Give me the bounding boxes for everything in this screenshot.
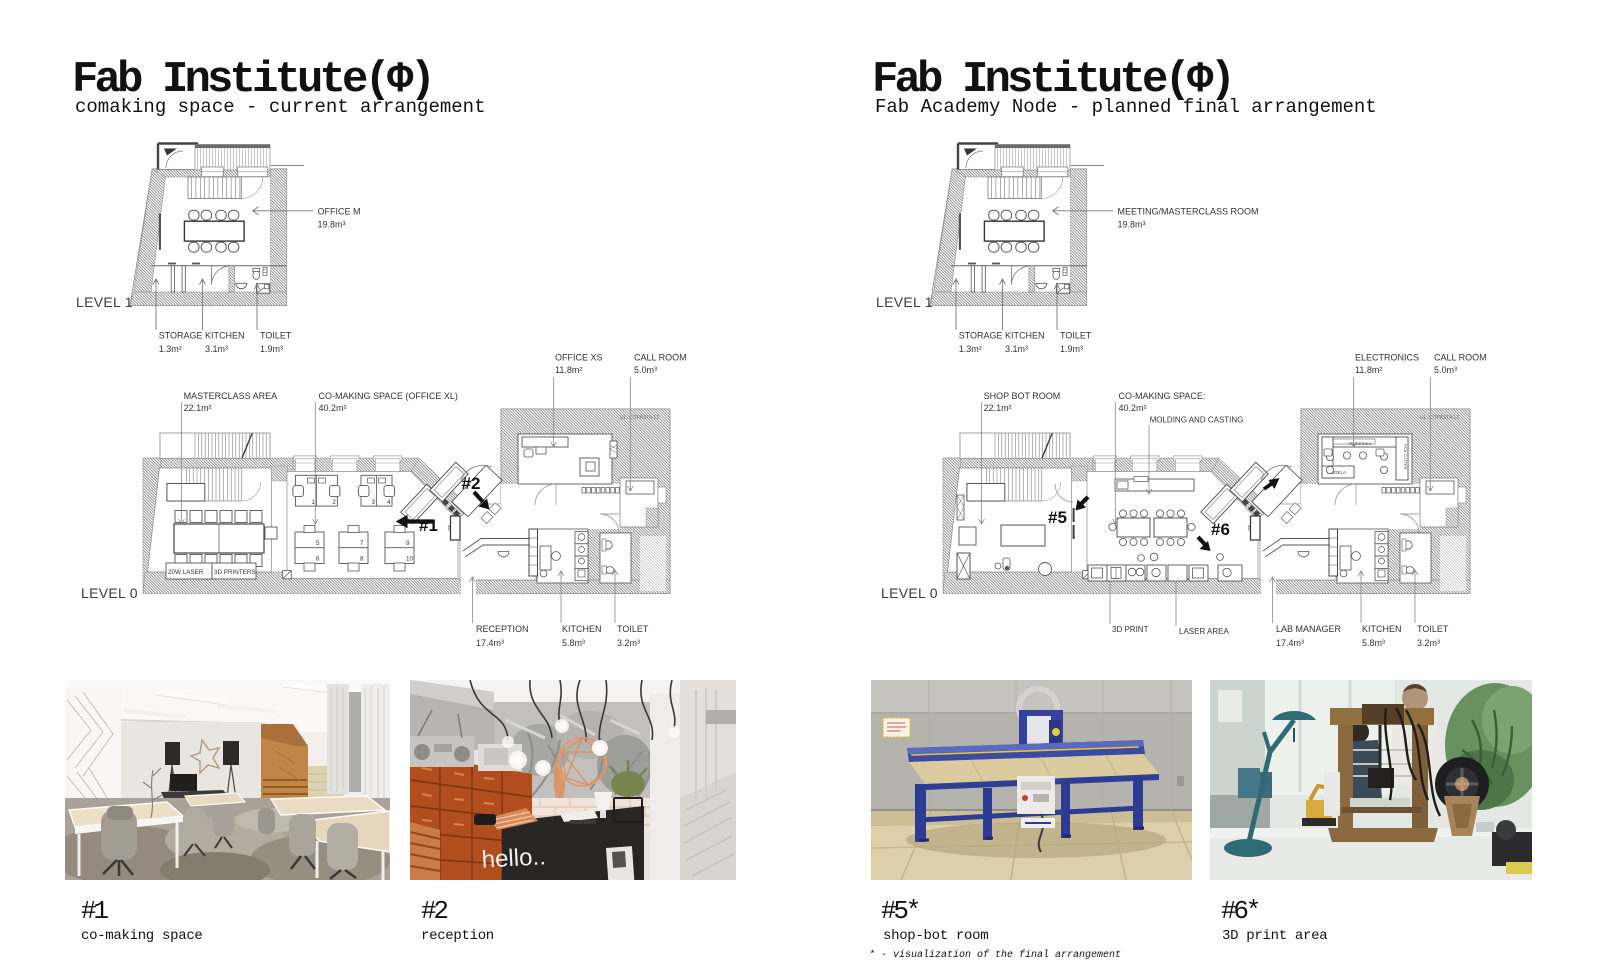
svg-text:3: 3 <box>372 499 376 506</box>
svg-text:MEETING/MASTERCLASS ROOM: MEETING/MASTERCLASS ROOM <box>1118 207 1259 217</box>
svg-text:LAB MANAGER: LAB MANAGER <box>1276 624 1342 634</box>
svg-text:22.1m²: 22.1m² <box>984 403 1012 413</box>
svg-text:MASTERCLASS AREA: MASTERCLASS AREA <box>184 391 278 401</box>
svg-text:5.8m³: 5.8m³ <box>562 638 585 648</box>
svg-text:22.1m²: 22.1m² <box>184 403 212 413</box>
svg-text:1.9m³: 1.9m³ <box>1060 344 1083 354</box>
svg-text:TOILET: TOILET <box>1417 624 1449 634</box>
svg-text:RECEPTION: RECEPTION <box>476 624 529 634</box>
svg-text:LEVEL 0: LEVEL 0 <box>81 585 138 601</box>
svg-text:ELECTRONICS: ELECTRONICS <box>1355 353 1419 363</box>
svg-text:SHOP BOT ROOM: SHOP BOT ROOM <box>984 391 1061 401</box>
svg-text:4: 4 <box>387 499 391 506</box>
svg-text:19.8m³: 19.8m³ <box>1118 220 1146 230</box>
svg-text:LASER AREA: LASER AREA <box>1179 627 1229 636</box>
svg-text:CO-MAKING SPACE:: CO-MAKING SPACE: <box>1119 391 1206 401</box>
svg-text:LEVEL 1: LEVEL 1 <box>76 294 133 310</box>
svg-text:3.1m³: 3.1m³ <box>1005 344 1028 354</box>
svg-text:7: 7 <box>360 540 364 547</box>
svg-text:6: 6 <box>316 556 320 563</box>
svg-text:UL. COPASTA 12: UL. COPASTA 12 <box>1420 415 1459 421</box>
svg-text:5: 5 <box>316 540 320 547</box>
svg-text:CALL ROOM: CALL ROOM <box>634 353 687 363</box>
svg-text:3.2m³: 3.2m³ <box>1417 638 1440 648</box>
svg-text:2: 2 <box>332 499 336 506</box>
svg-text:3.2m³: 3.2m³ <box>617 638 640 648</box>
svg-text:5.0m³: 5.0m³ <box>1434 365 1457 375</box>
svg-text:19.8m³: 19.8m³ <box>318 220 346 230</box>
svg-text:17.4m³: 17.4m³ <box>476 638 504 648</box>
svg-text:8: 8 <box>360 556 364 563</box>
svg-text:1.3m²: 1.3m² <box>959 344 982 354</box>
svg-text:LEVEL 1: LEVEL 1 <box>876 294 933 310</box>
svg-text:STORAGE: STORAGE <box>159 331 203 341</box>
svg-text:TOILET: TOILET <box>260 331 292 341</box>
svg-text:PCB CUTTER: PCB CUTTER <box>1403 444 1408 470</box>
svg-text:#2: #2 <box>462 474 481 493</box>
svg-text:KITCHEN: KITCHEN <box>205 331 245 341</box>
svg-text:40.2m²: 40.2m² <box>319 403 347 413</box>
svg-text:5.8m³: 5.8m³ <box>1362 638 1385 648</box>
svg-text:LEVEL 0: LEVEL 0 <box>881 585 938 601</box>
svg-text:5.0m³: 5.0m³ <box>634 365 657 375</box>
svg-text:#6: #6 <box>1211 520 1230 539</box>
svg-text:9: 9 <box>406 540 410 547</box>
svg-text:10: 10 <box>406 556 414 563</box>
svg-text:3D: 3D <box>447 525 452 532</box>
svg-text:CO-MAKING SPACE (OFFICE XL): CO-MAKING SPACE (OFFICE XL) <box>319 391 458 401</box>
svg-text:MOLDING AND CASTING: MOLDING AND CASTING <box>1150 416 1244 425</box>
svg-text:KITCHEN: KITCHEN <box>1362 624 1402 634</box>
svg-text:hello..: hello.. <box>481 843 546 873</box>
svg-text:#5: #5 <box>1048 508 1067 527</box>
svg-text:KITCHEN: KITCHEN <box>562 624 602 634</box>
svg-text:40.2m²: 40.2m² <box>1119 403 1147 413</box>
svg-text:KITCHEN: KITCHEN <box>1005 331 1045 341</box>
svg-text:11.8m²: 11.8m² <box>555 365 582 375</box>
svg-text:TOILET: TOILET <box>1060 331 1092 341</box>
svg-text:3D PRINT: 3D PRINT <box>1112 625 1149 634</box>
svg-text:20W LASER: 20W LASER <box>168 569 204 576</box>
svg-text:TOILET: TOILET <box>617 624 649 634</box>
svg-text:#1: #1 <box>419 516 438 535</box>
svg-text:3D: 3D <box>1247 525 1252 532</box>
svg-text:3D PRINTERS: 3D PRINTERS <box>214 569 256 576</box>
svg-text:11.8m²: 11.8m² <box>1355 365 1382 375</box>
svg-text:1.9m³: 1.9m³ <box>260 344 283 354</box>
svg-text:UL. COPASTA 12: UL. COPASTA 12 <box>620 415 659 421</box>
svg-text:3.1m³: 3.1m³ <box>205 344 228 354</box>
svg-text:17.4m³: 17.4m³ <box>1276 638 1304 648</box>
svg-text:1: 1 <box>311 499 315 506</box>
svg-text:STORAGE: STORAGE <box>959 331 1003 341</box>
svg-text:CALL ROOM: CALL ROOM <box>1434 353 1487 363</box>
svg-text:OFFICE M: OFFICE M <box>318 207 361 217</box>
svg-text:1.3m²: 1.3m² <box>159 344 182 354</box>
svg-text:OFFICE XS: OFFICE XS <box>555 353 603 363</box>
